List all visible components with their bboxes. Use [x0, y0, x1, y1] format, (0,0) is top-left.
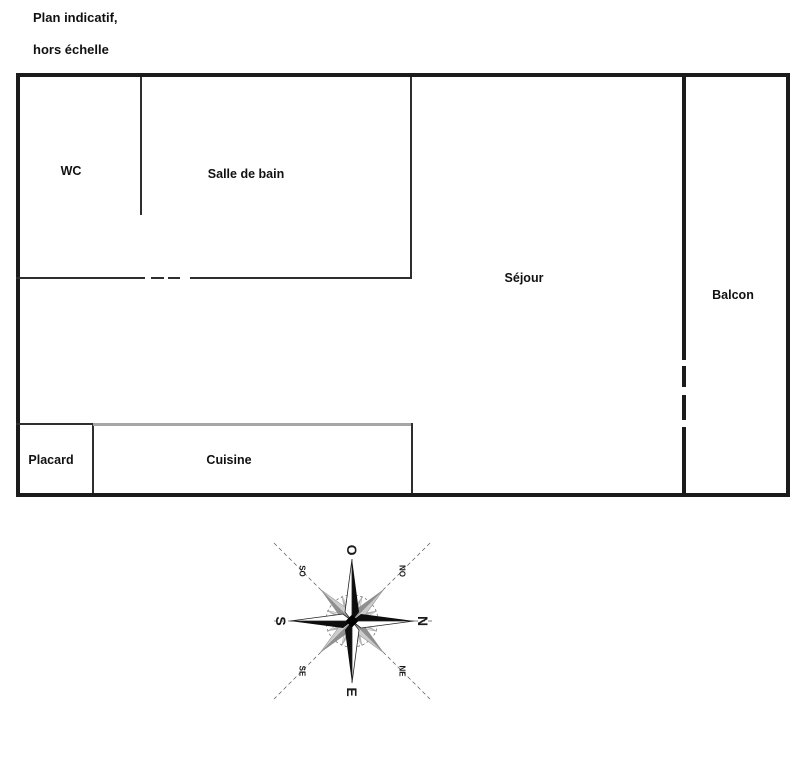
outer-wall-top [16, 73, 790, 77]
compass-label-so: SO [298, 565, 307, 577]
plan-note: Plan indicatif, hors échelle [33, 10, 118, 58]
placard-partition [92, 423, 94, 493]
kitchen-right-wall [411, 423, 413, 493]
compass-label-se: SE [298, 666, 307, 677]
room-label-balcon: Balcon [712, 288, 754, 302]
compass-label-s: S [273, 616, 289, 625]
kitchen-top-line [93, 423, 413, 426]
compass-label-o: O [344, 545, 360, 556]
bathroom-door-dash-1 [151, 277, 164, 279]
bathroom-bottom-wall-left [16, 277, 145, 279]
placard-top-wall [16, 423, 93, 425]
compass-label-e: E [344, 687, 360, 696]
balcony-wall-solid-bottom [682, 427, 686, 497]
outer-wall-bottom [16, 493, 790, 497]
room-label-salle-de-bain: Salle de bain [208, 167, 284, 181]
outer-wall-right [786, 73, 790, 497]
room-label-wc: WC [61, 164, 82, 178]
compass-label-ne: NE [398, 665, 407, 677]
floor-plan-page: Plan indicatif, hors échelle WC Salle de… [0, 0, 800, 760]
compass-label-n: N [415, 616, 431, 626]
outer-wall-left [16, 73, 20, 497]
balcony-wall-solid-top [682, 73, 686, 360]
room-label-cuisine: Cuisine [206, 453, 251, 467]
balcony-door-dash-2 [682, 395, 686, 420]
bathroom-right-wall [410, 77, 412, 279]
room-label-sejour: Séjour [505, 271, 544, 285]
bathroom-door-dash-2 [168, 277, 180, 279]
room-label-placard: Placard [28, 453, 73, 467]
plan-note-line1: Plan indicatif, [33, 10, 118, 25]
compass-rose-icon: N E S O NE SE SO NO [267, 536, 437, 706]
bathroom-bottom-wall-right [190, 277, 412, 279]
plan-note-line2: hors échelle [33, 42, 109, 57]
compass-label-no: NO [398, 565, 407, 577]
wc-partition [140, 77, 142, 215]
balcony-door-dash-1 [682, 366, 686, 387]
